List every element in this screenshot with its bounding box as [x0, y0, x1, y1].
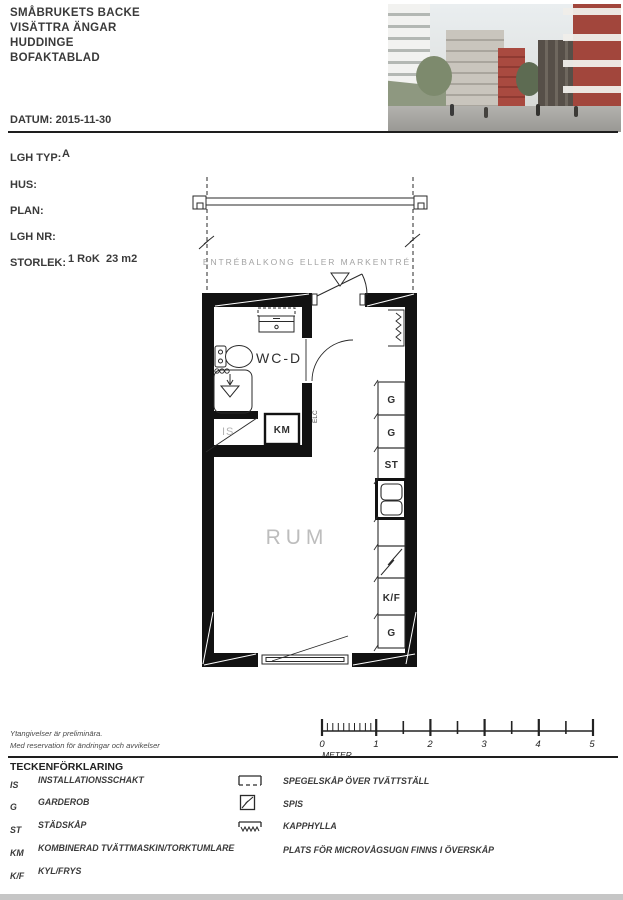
scale-unit-label: METER [322, 750, 352, 760]
unit-label-st: ST [385, 460, 399, 471]
window [262, 636, 348, 664]
km-label: KM [274, 425, 291, 436]
disclaimer-line-2: Med reservation för ändringar och avvike… [10, 740, 160, 751]
shower-area [214, 370, 252, 413]
legend-title: TECKENFÖRKLARING [10, 761, 123, 773]
legend-desc-g: GARDEROB [38, 797, 89, 807]
scale-tick-0: 0 [319, 739, 325, 750]
wc-door [306, 339, 353, 381]
legend-desc-mirror-cabinet: SPEGELSKÅP ÖVER TVÄTTSTÄLL [283, 776, 429, 786]
mirror-cabinet-icon [237, 774, 263, 789]
coat-shelf-icon [237, 819, 263, 835]
balcony-rail [193, 177, 427, 292]
scale-bar-numbers: 0 1 2 3 4 5 [319, 739, 595, 750]
legend-desc-kapphylla: KAPPHYLLA [283, 821, 337, 831]
unit-label-g3: G [387, 628, 395, 639]
disclaimer-line-1: Ytangivelser är preliminära. [10, 728, 102, 739]
scale-tick-4: 4 [535, 739, 540, 750]
legend-row-km: KM KOMBINERAD TVÄTTMASKIN/TORKTUMLARE [10, 843, 24, 861]
legend-row-is: IS INSTALLATIONSSCHAKT [10, 775, 18, 793]
legend-row-g: G GARDEROB [10, 797, 17, 815]
legend-row-spis: SPIS [239, 794, 257, 812]
is-label: IS [222, 426, 234, 438]
legend-abbr-kf: K/F [10, 871, 24, 881]
main-room-label: RUM [266, 526, 329, 549]
legend-desc-km: KOMBINERAD TVÄTTMASKIN/TORKTUMLARE [38, 843, 234, 853]
legend-note-microwave: PLATS FÖR MICROVÅGSUGN FINNS I ÖVERSKÅP [283, 845, 494, 855]
mirror-cabinet-and-basin [258, 308, 295, 332]
stove-icon [239, 794, 257, 812]
scale-bar [322, 719, 593, 736]
scale-tick-3: 3 [481, 739, 487, 750]
toilet [215, 346, 253, 368]
legend-row-mirror-cabinet: SPEGELSKÅP ÖVER TVÄTTSTÄLL [237, 773, 263, 791]
legend-desc-kf: KYL/FRYS [38, 866, 81, 876]
scale-tick-5: 5 [589, 739, 595, 750]
legend-abbr-st: ST [10, 825, 21, 835]
scale-tick-2: 2 [426, 739, 433, 750]
page-bottom-bar [0, 894, 623, 900]
legend-desc-st: STÄDSKÅP [38, 820, 86, 830]
coat-shelf-symbol [388, 310, 404, 346]
scale-tick-1: 1 [373, 739, 378, 750]
legend-row-kapphylla: KAPPHYLLA [237, 818, 263, 836]
legend-abbr-g: G [10, 802, 17, 812]
elc-label: ELC [312, 410, 319, 423]
legend-abbr-is: IS [10, 780, 18, 790]
legend-desc-spis: SPIS [283, 799, 303, 809]
entrance-door [312, 273, 367, 305]
kitchen-units [374, 380, 406, 651]
unit-label-g1: G [387, 395, 395, 406]
wc-room-label: WC-D [256, 350, 302, 366]
legend-divider [8, 756, 618, 758]
washing-machine: KM [265, 414, 299, 444]
unit-label-kf: K/F [383, 593, 401, 604]
balcony-label: ENTRÉBALKONG ELLER MARKENTRÉ [203, 257, 411, 267]
legend-abbr-km: KM [10, 848, 24, 858]
legend-desc-is: INSTALLATIONSSCHAKT [38, 775, 144, 785]
unit-label-g2: G [387, 428, 395, 439]
legend-row-kf: K/F KYL/FRYS [10, 866, 24, 884]
legend-row-st: ST STÄDSKÅP [10, 820, 21, 838]
